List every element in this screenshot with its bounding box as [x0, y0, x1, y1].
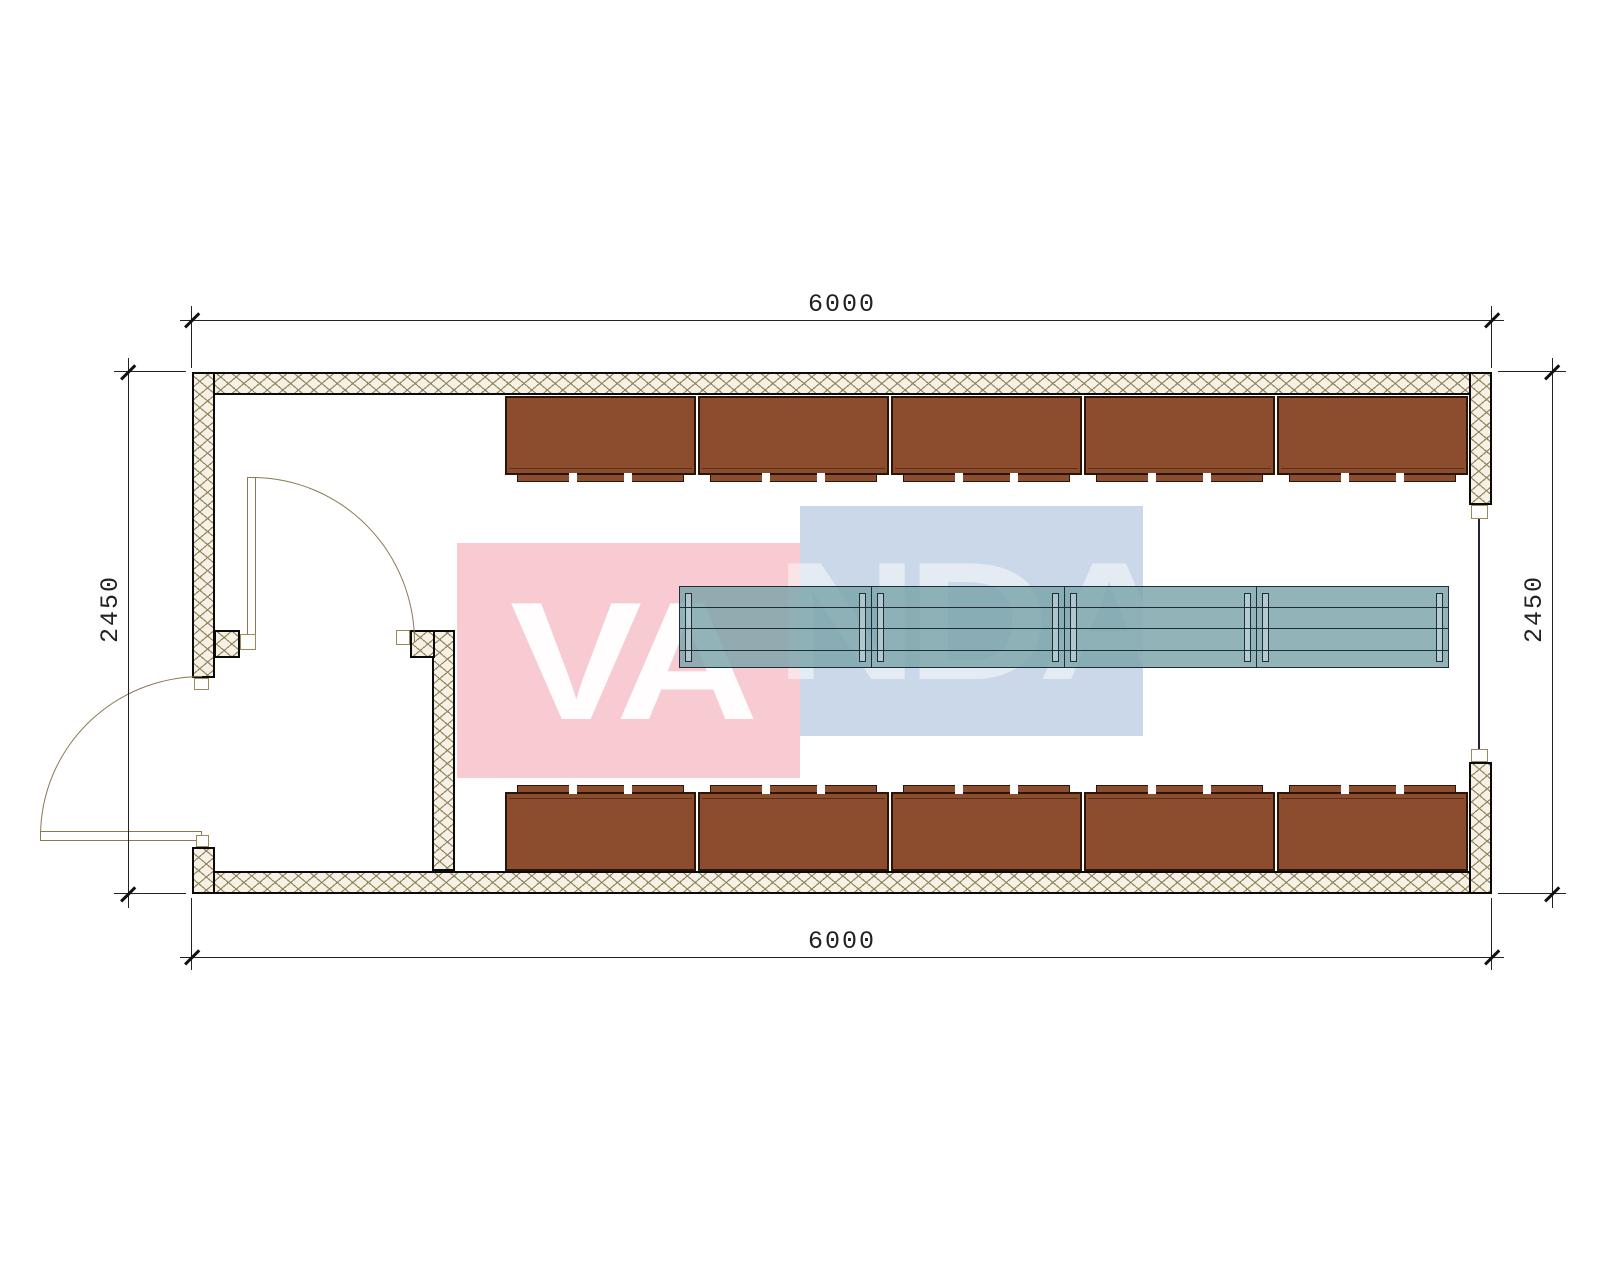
cabinet-body — [1277, 792, 1468, 871]
cabinet-row-bottom — [504, 785, 1469, 871]
cabinet-body — [698, 396, 889, 475]
cabinet — [698, 785, 889, 871]
left-wall-door-jamb — [214, 630, 240, 658]
cabinet-feet — [1289, 785, 1456, 792]
wall-top — [192, 372, 1492, 395]
dim-right-label: 2450 — [1520, 575, 1549, 643]
window-glazing-line — [1478, 519, 1480, 749]
cabinet-body — [891, 792, 1082, 871]
cabinet-row-top — [504, 396, 1469, 482]
table-segment — [1256, 587, 1448, 667]
door-jamb-cap-exterior-top — [194, 678, 209, 690]
partition-wall — [432, 630, 455, 871]
cabinet-front-line — [702, 468, 885, 469]
dim-right-line — [1552, 358, 1553, 908]
cabinet-body — [1084, 396, 1275, 475]
table-segment — [871, 587, 1063, 667]
cabinet — [698, 396, 889, 482]
dim-top-label: 6000 — [192, 290, 1492, 319]
cabinet-body — [1084, 792, 1275, 871]
table-edge-line — [680, 628, 1448, 629]
floor-plan-canvas: VA NDA — [0, 0, 1600, 1280]
table-segments — [680, 587, 1448, 667]
dim-right-ext-top — [1498, 371, 1566, 372]
table-segment — [680, 587, 871, 667]
dim-top-line — [180, 320, 1504, 321]
cabinet-feet — [1289, 475, 1456, 482]
cabinet-body — [505, 792, 696, 871]
dim-left-label: 2450 — [96, 575, 125, 643]
cabinet-body — [698, 792, 889, 871]
cabinet-body — [505, 396, 696, 475]
cabinet-front-line — [1088, 798, 1271, 799]
cabinet — [891, 785, 1082, 871]
exterior-door-swing-arc — [40, 676, 202, 836]
cabinet-feet — [517, 475, 684, 482]
cabinet-body — [1277, 396, 1468, 475]
door-jamb-cap-exterior-bottom — [196, 835, 209, 847]
wall-right-lower — [1469, 762, 1492, 894]
cabinet — [1277, 396, 1468, 482]
cabinet-feet — [903, 785, 1070, 792]
cabinet-feet — [517, 785, 684, 792]
cabinet — [505, 396, 696, 482]
dim-right-ext-bottom — [1498, 893, 1566, 894]
cabinet — [891, 396, 1082, 482]
cabinet — [505, 785, 696, 871]
door-jamb-cap-interior-right — [396, 630, 410, 645]
cabinet-body — [891, 396, 1082, 475]
wall-right-upper — [1469, 372, 1492, 505]
cabinet-feet — [1096, 785, 1263, 792]
table-segment — [1064, 587, 1256, 667]
wall-left-upper — [192, 372, 215, 678]
window-jamb-cap-top — [1471, 505, 1488, 519]
door-jamb-cap-interior-left — [240, 634, 256, 650]
cabinet-feet — [1096, 475, 1263, 482]
window-jamb-cap-bottom — [1471, 749, 1488, 762]
cabinet-front-line — [1281, 468, 1464, 469]
cabinet — [1084, 785, 1275, 871]
cabinet — [1277, 785, 1468, 871]
table-edge-line — [680, 650, 1448, 651]
cabinet-front-line — [1281, 798, 1464, 799]
cabinet — [1084, 396, 1275, 482]
cabinet-front-line — [702, 798, 885, 799]
cabinet-feet — [710, 475, 877, 482]
cabinet-front-line — [1088, 468, 1271, 469]
cabinet-feet — [710, 785, 877, 792]
cabinet-front-line — [509, 798, 692, 799]
dim-bottom-line — [180, 957, 1504, 958]
cabinet-front-line — [509, 468, 692, 469]
dim-left-line — [128, 358, 129, 908]
wall-left-lower — [192, 847, 215, 894]
cabinet-front-line — [895, 468, 1078, 469]
dim-bottom-label: 6000 — [192, 927, 1492, 956]
wall-bottom — [192, 871, 1492, 894]
interior-door-swing-arc — [252, 477, 415, 642]
cabinet-feet — [903, 475, 1070, 482]
dining-table — [679, 586, 1449, 668]
table-edge-line — [680, 607, 1448, 608]
cabinet-front-line — [895, 798, 1078, 799]
